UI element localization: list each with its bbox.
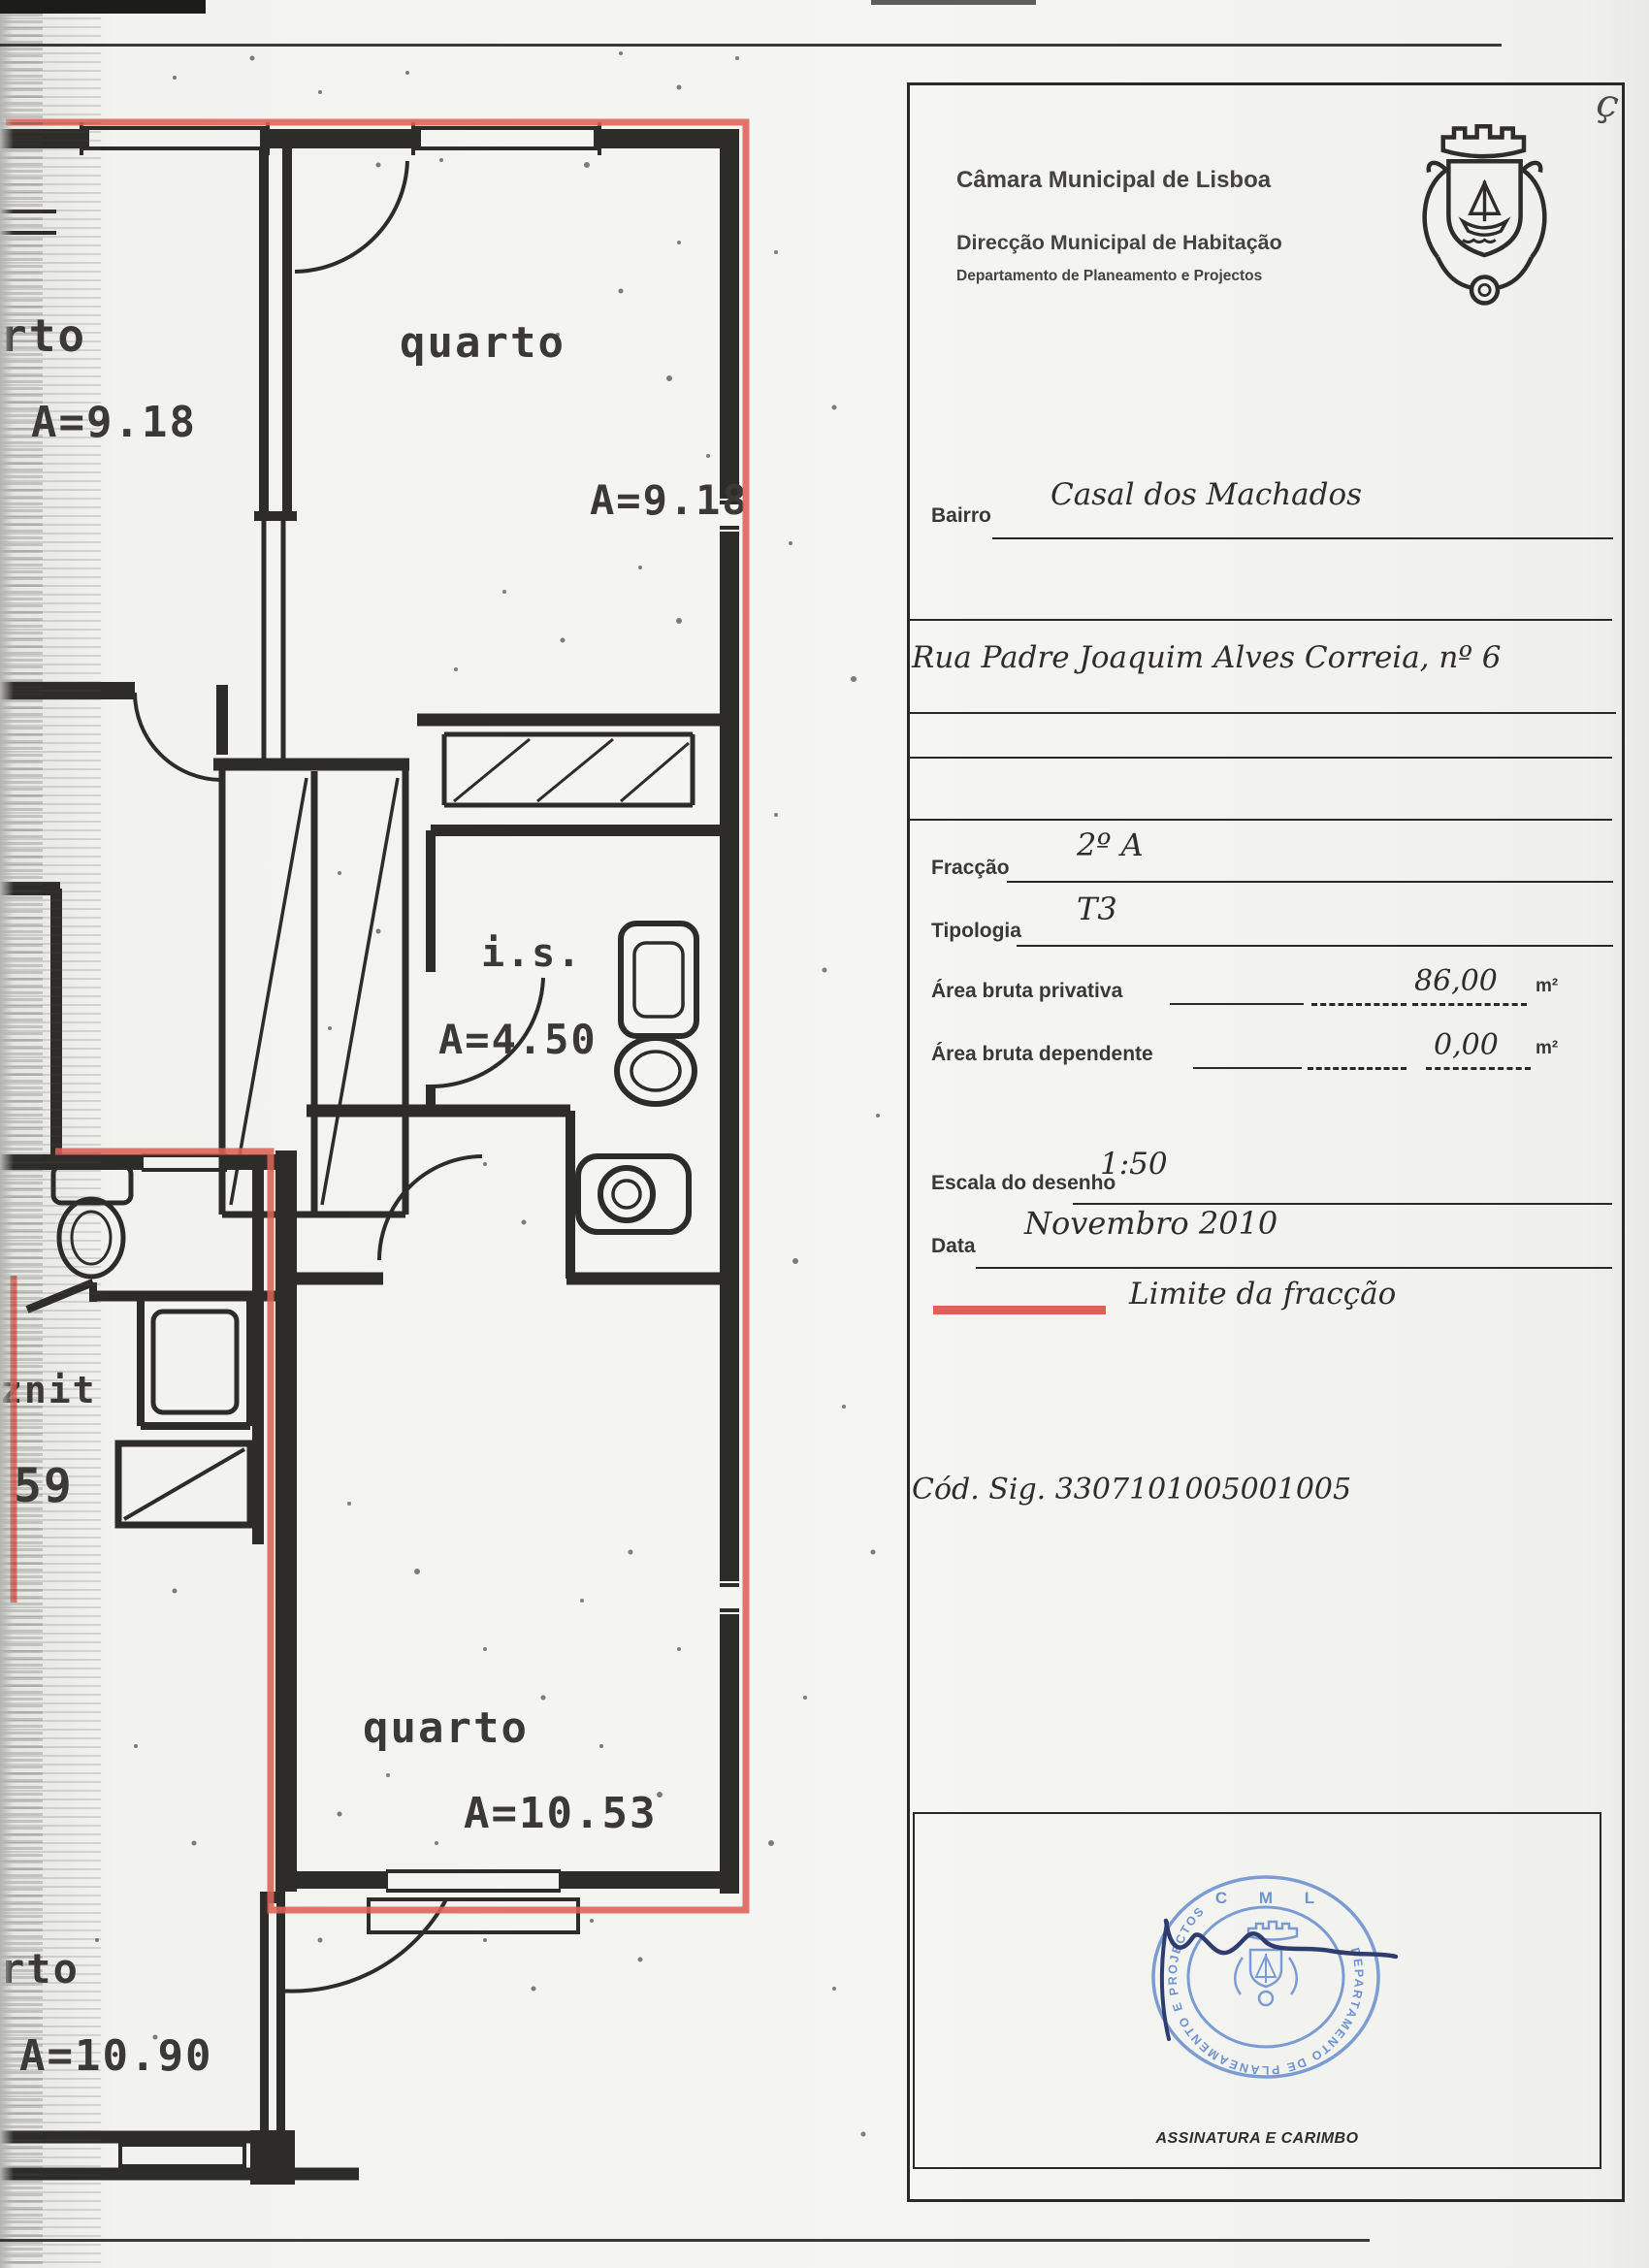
- stamp-top-text: C M L: [1215, 1889, 1328, 1907]
- area-privativa-rule: [1170, 1003, 1304, 1005]
- address-rule: [910, 712, 1616, 714]
- bairro-rule: [992, 537, 1613, 539]
- title-block-panel: Câmara Municipal de Lisboa Direcção Muni…: [907, 82, 1625, 2202]
- tipologia-label: Tipologia: [931, 920, 1021, 943]
- escala-value: 1:50: [1100, 1147, 1168, 1182]
- legend-red-line: [933, 1306, 1106, 1314]
- cod-sig: Cód. Sig. 3307101005001005: [912, 1473, 1351, 1507]
- room-label-top-right: quarto: [400, 318, 566, 368]
- bairro-value: Casal dos Machados: [1051, 477, 1362, 512]
- data-value: Novembro 2010: [1024, 1205, 1277, 1242]
- area-dependente-value-underline: [1426, 1067, 1531, 1070]
- area-dependente-value: 0,00: [1434, 1028, 1499, 1062]
- room-label-bottom: quarto: [363, 1703, 529, 1753]
- scan-edge-shadow: [0, 0, 14, 2268]
- area-privativa-unit: m²: [1536, 976, 1558, 997]
- cml-stamp: C M L DEPARTAMENTO DE PLANEAMENTO E PROJ…: [1014, 1831, 1518, 2122]
- tipologia-value: T3: [1077, 891, 1117, 927]
- blank-rule-1: [910, 619, 1612, 621]
- escala-label: Escala do desenho: [931, 1172, 1115, 1195]
- room-labels: rto A=9.18 quarto A=9.18 i.s. A=4.50 qua…: [0, 309, 749, 2081]
- fraccao-rule: [1007, 881, 1613, 883]
- blank-rule-3: [910, 819, 1612, 821]
- wardrobe-outline: [444, 734, 693, 805]
- org-department: Departamento de Planeamento e Projectos: [956, 268, 1262, 285]
- data-label: Data: [931, 1235, 976, 1258]
- fraccao-label: Fracção: [931, 857, 1010, 880]
- area-dependente-unit: m²: [1536, 1038, 1558, 1059]
- area-dependente-label: Área bruta dependente: [931, 1043, 1153, 1066]
- org-name: Câmara Municipal de Lisboa: [956, 167, 1271, 194]
- area-privativa-dashes: [1311, 1003, 1406, 1006]
- tipologia-rule: [1017, 945, 1613, 947]
- signature-box: C M L DEPARTAMENTO DE PLANEAMENTO E PROJ…: [913, 1812, 1601, 2169]
- closet-outline: [222, 764, 405, 1215]
- room-area-bottom: A=10.53: [464, 1789, 657, 1838]
- area-privativa-value: 86,00: [1414, 964, 1498, 998]
- data-rule: [976, 1267, 1612, 1269]
- room-area-bathroom: A=4.50: [438, 1016, 598, 1063]
- org-direction: Direcção Municipal de Habitação: [956, 231, 1282, 255]
- scan-smudge-top-right: [871, 0, 1036, 5]
- area-dependente-dashes: [1308, 1067, 1406, 1070]
- floor-plan: rto A=9.18 quarto A=9.18 i.s. A=4.50 qua…: [0, 0, 907, 2268]
- signature-caption: ASSINATURA E CARIMBO: [915, 2130, 1600, 2148]
- bottom-window: [369, 1871, 578, 1932]
- lisbon-coat-of-arms-icon: [1400, 107, 1569, 325]
- fraccao-value: 2º A: [1077, 826, 1144, 863]
- fraction-limit-line: [6, 122, 746, 1910]
- area-dependente-rule: [1193, 1067, 1302, 1069]
- bathroom-fixtures: [53, 923, 696, 1277]
- scan-line-top: [0, 44, 1502, 47]
- scan-line-bottom: [0, 2239, 1370, 2242]
- scanned-floor-plan-document: rto A=9.18 quarto A=9.18 i.s. A=4.50 qua…: [0, 0, 1649, 2268]
- legend-label: Limite da fracção: [1129, 1277, 1396, 1312]
- area-privativa-label: Área bruta privativa: [931, 980, 1122, 1003]
- bairro-label: Bairro: [931, 504, 991, 528]
- address-value: Rua Padre Joaquim Alves Correia, nº 6: [912, 640, 1502, 675]
- blank-rule-2: [910, 757, 1612, 759]
- scan-smudge-top-left: [0, 0, 206, 14]
- room-area-top-right: A=9.18: [590, 476, 749, 524]
- room-label-bathroom: i.s.: [481, 931, 582, 976]
- area-privativa-value-underline: [1412, 1003, 1527, 1006]
